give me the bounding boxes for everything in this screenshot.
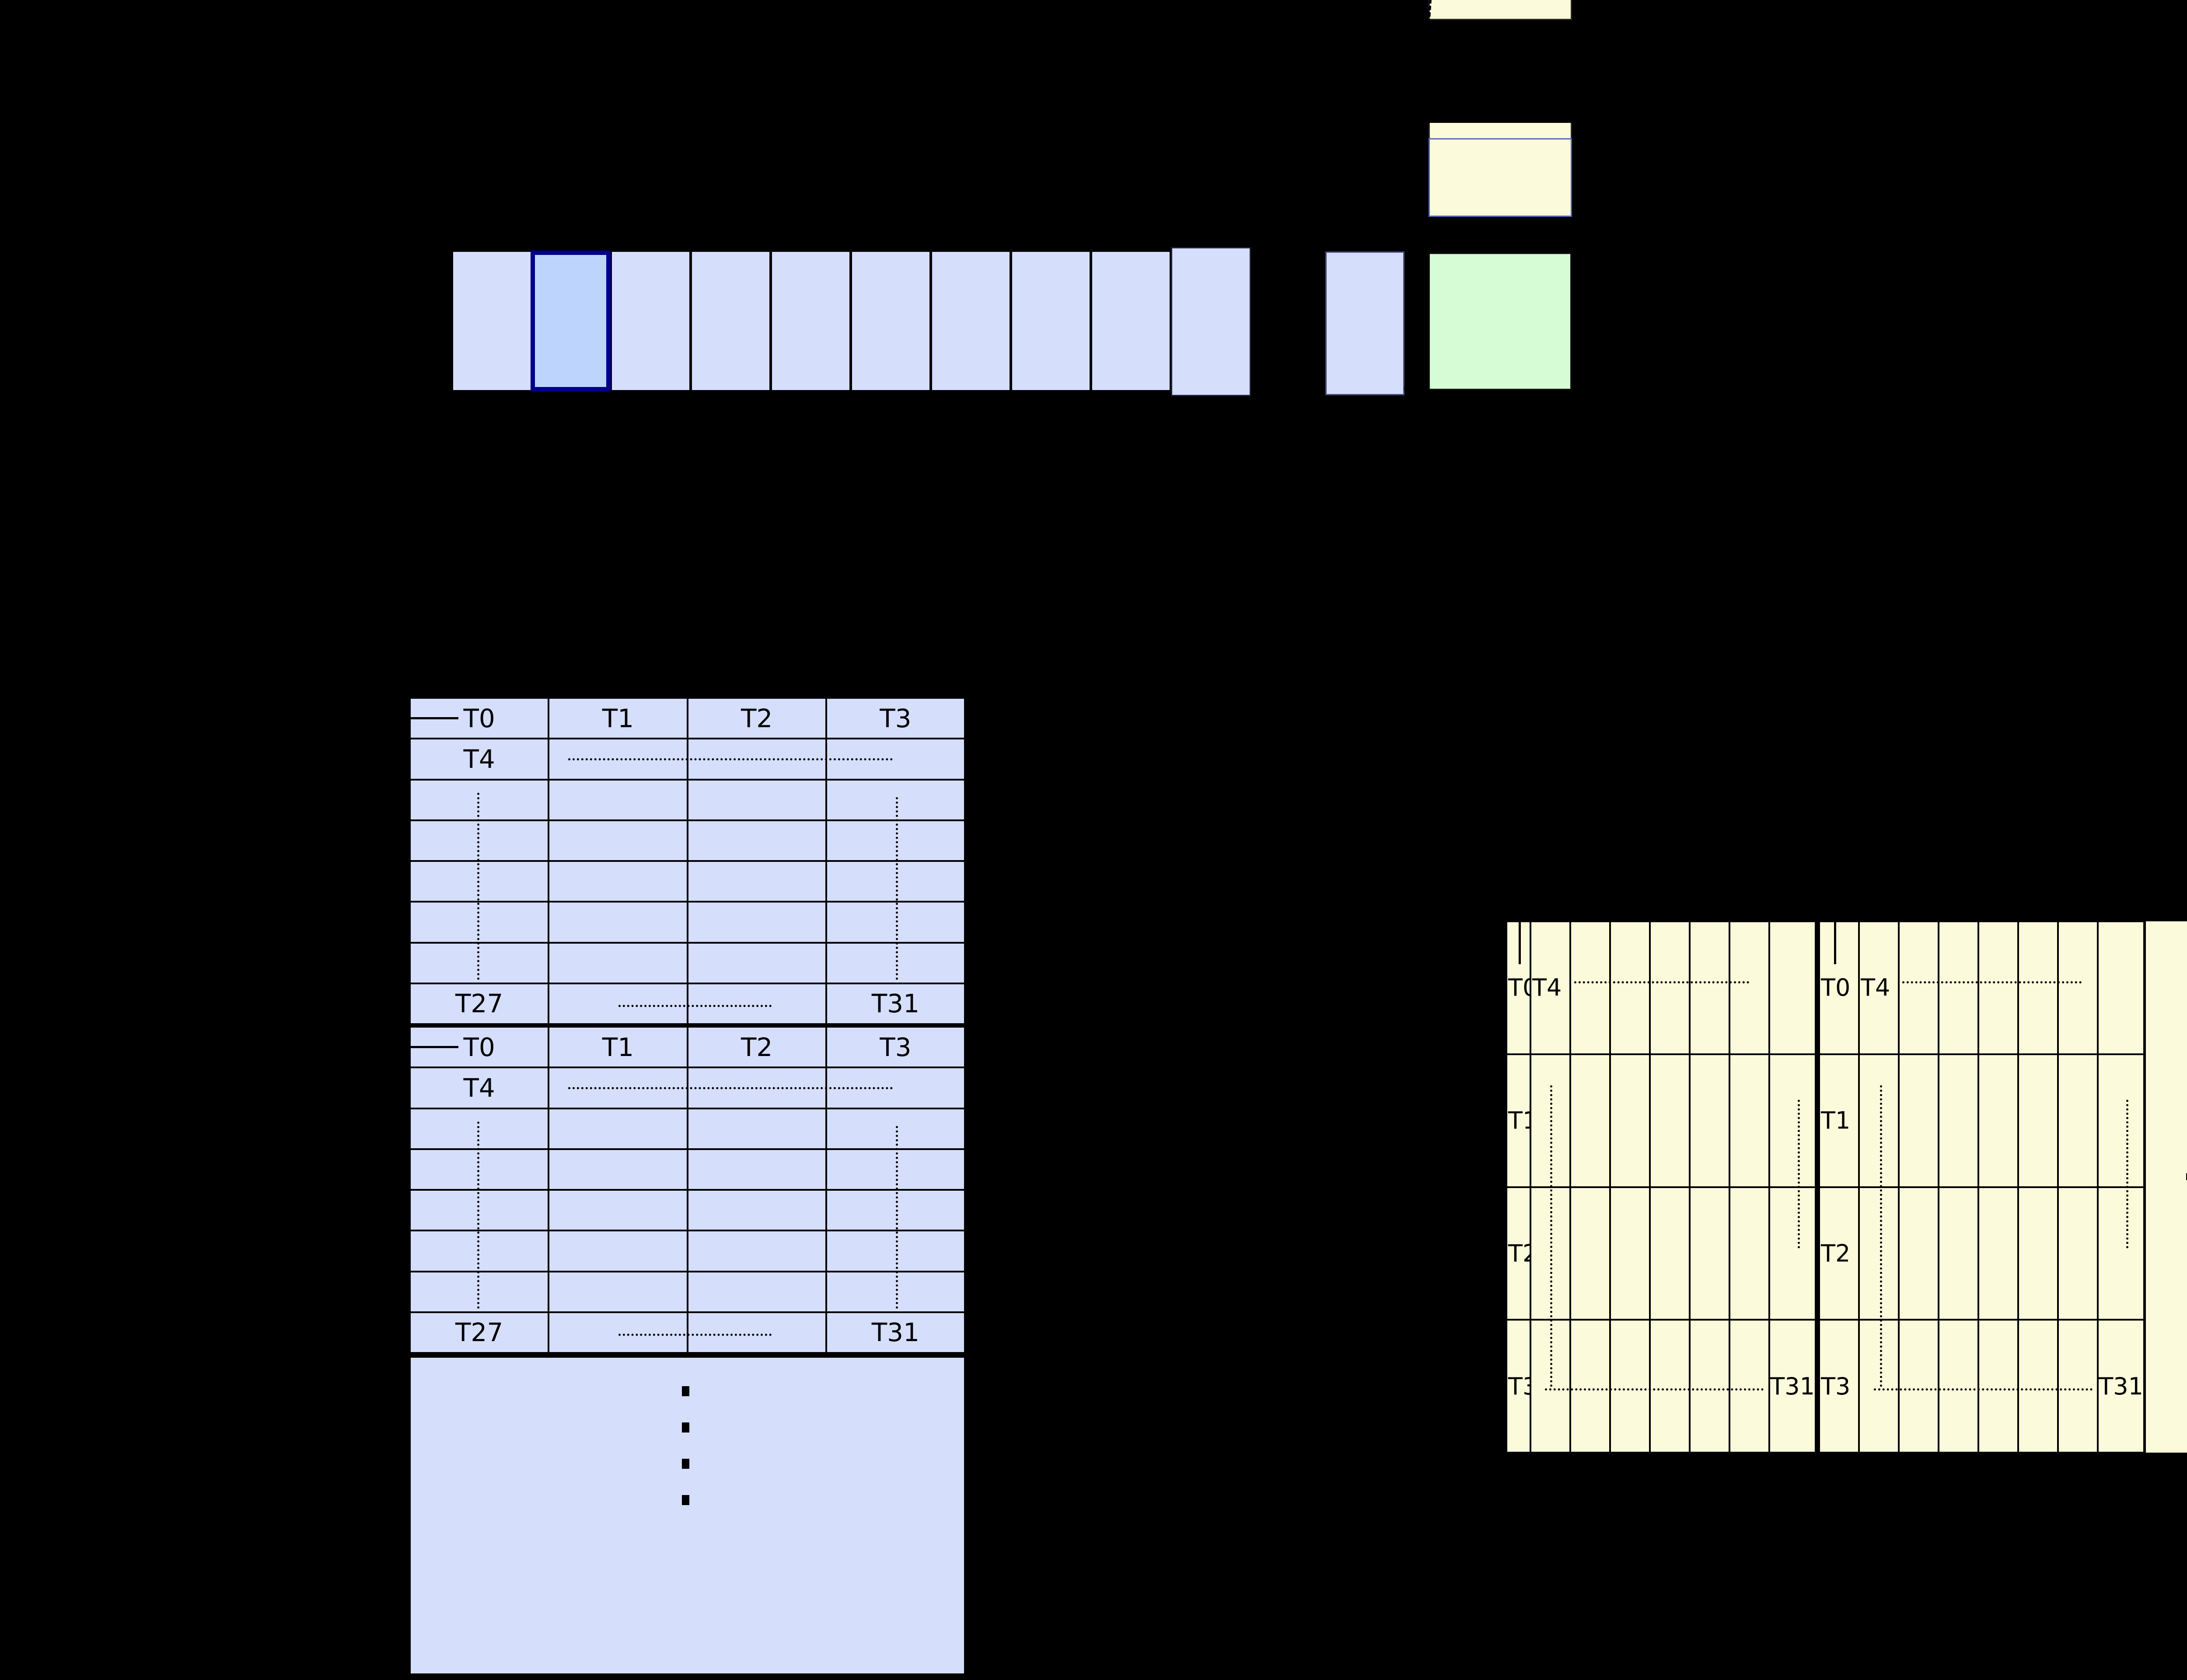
cell-t4: T4 bbox=[410, 1067, 548, 1108]
gcell-empty bbox=[1690, 921, 1729, 1054]
label-t27: T27 bbox=[455, 1318, 503, 1347]
gcell-empty bbox=[1610, 1187, 1650, 1320]
cell-empty bbox=[548, 1108, 687, 1149]
gcell-empty bbox=[1978, 1054, 2018, 1187]
gcell-empty bbox=[1570, 1320, 1610, 1453]
bank-grid-block-2: T0 T4 T1 T2 T3 T31 bbox=[1817, 920, 2146, 1454]
detached-word-box bbox=[1325, 251, 1404, 395]
gcell-empty bbox=[1610, 1320, 1650, 1453]
word-box bbox=[931, 251, 1011, 391]
cell-empty bbox=[688, 1230, 826, 1271]
cell-empty bbox=[688, 820, 826, 861]
dashed-mapping-line bbox=[1404, 0, 1432, 390]
gcell-empty bbox=[1859, 1187, 1899, 1320]
glabel-t0: T0 bbox=[1821, 974, 1850, 1001]
ellipsis-dot bbox=[682, 1422, 689, 1433]
gcell-empty bbox=[1939, 1054, 1978, 1187]
cell-empty bbox=[548, 983, 687, 1024]
gcell-empty bbox=[1650, 1320, 1690, 1453]
col1-ellipsis bbox=[477, 1122, 479, 1309]
gcell-empty bbox=[2098, 921, 2144, 1054]
glabel-t2: T2 bbox=[1821, 1240, 1850, 1267]
label-t27: T27 bbox=[455, 989, 503, 1018]
glabel-t1: T1 bbox=[1821, 1107, 1850, 1134]
gcell-t3: T3 bbox=[1819, 1320, 1859, 1453]
gcell-empty bbox=[2058, 1054, 2098, 1187]
cell-empty bbox=[548, 1149, 687, 1190]
cell-t1: T1 bbox=[548, 1027, 687, 1067]
bank-conflict-grid: T0 T4 T1 T2 T3 T31 T0 T4 bbox=[1505, 920, 2187, 1454]
gcell-empty bbox=[1859, 1054, 1899, 1187]
green-box bbox=[1429, 253, 1572, 390]
cell-empty bbox=[548, 1190, 687, 1230]
gcell-t3: T3 bbox=[1506, 1320, 1530, 1453]
label-t3: T3 bbox=[880, 704, 911, 733]
label-t0: T0 bbox=[463, 1032, 495, 1062]
cell-empty bbox=[688, 1272, 826, 1312]
cell-t31: T31 bbox=[826, 983, 965, 1024]
gcell-empty bbox=[1570, 1054, 1610, 1187]
cell-empty bbox=[548, 780, 687, 820]
cell-empty bbox=[688, 1149, 826, 1190]
glabel-t31: T31 bbox=[2099, 1373, 2143, 1400]
gcell-t31: T31 bbox=[1769, 1320, 1816, 1453]
gcell-empty bbox=[2018, 1320, 2058, 1453]
thread-table: T0 T1 T2 T3 T4 T27 T31 T0 bbox=[409, 697, 966, 1676]
gcell-empty bbox=[1939, 1187, 1978, 1320]
gcell-empty bbox=[1610, 921, 1650, 1054]
gcell-empty bbox=[1650, 921, 1690, 1054]
row-dotted-line bbox=[568, 758, 893, 760]
cell-t2: T2 bbox=[688, 698, 826, 739]
glabel-t3: T3 bbox=[1821, 1373, 1850, 1400]
row4-dotted-line bbox=[1545, 1388, 1764, 1391]
bank-grid-block-1: T0 T4 T1 T2 T3 T31 bbox=[1505, 920, 1817, 1454]
gcell-empty bbox=[2058, 921, 2098, 1054]
gcell-empty bbox=[2058, 1187, 2098, 1320]
gcell-empty bbox=[1729, 1187, 1769, 1320]
gcell-empty bbox=[1729, 1054, 1769, 1187]
label-t1: T1 bbox=[602, 704, 634, 733]
col4-ellipsis bbox=[896, 1126, 898, 1309]
gcell-empty bbox=[1978, 1320, 2018, 1453]
cell-empty bbox=[688, 1312, 826, 1353]
label-t2: T2 bbox=[741, 1032, 772, 1062]
gcell-empty bbox=[1939, 921, 1978, 1054]
label-t31: T31 bbox=[872, 989, 919, 1018]
label-t3: T3 bbox=[880, 1032, 911, 1062]
gcell-t4: T4 bbox=[1530, 921, 1570, 1054]
cell-empty bbox=[548, 820, 687, 861]
bank-grid-continuation bbox=[2146, 920, 2187, 1454]
gcell-empty bbox=[2018, 1054, 2058, 1187]
thread-table-continuation bbox=[409, 1354, 966, 1676]
cell-t27: T27 bbox=[410, 1312, 548, 1353]
pointer-tick bbox=[1519, 921, 1521, 964]
cell-t31: T31 bbox=[826, 1312, 965, 1353]
gcell-empty bbox=[1978, 921, 2018, 1054]
label-t0: T0 bbox=[463, 704, 495, 733]
ellipsis-dot bbox=[682, 1459, 689, 1469]
yellow-box-top-clipped bbox=[1429, 0, 1572, 20]
thread-table-block-2: T0 T1 T2 T3 T4 T27 T31 bbox=[409, 1025, 966, 1354]
gcell-t31: T31 bbox=[2098, 1320, 2144, 1453]
gcell-t2: T2 bbox=[1819, 1187, 1859, 1320]
gcell-t1: T1 bbox=[1506, 1054, 1530, 1187]
col4-ellipsis bbox=[896, 797, 898, 980]
gcell-empty bbox=[1769, 1054, 1816, 1187]
gcell-empty bbox=[1570, 1187, 1610, 1320]
pointer-dash bbox=[409, 717, 458, 719]
gcell-t1: T1 bbox=[1819, 1054, 1859, 1187]
cell-empty bbox=[688, 1108, 826, 1149]
gcell-t0: T0 bbox=[1819, 921, 1859, 1054]
gcell-empty bbox=[1899, 921, 1939, 1054]
cell-t1: T1 bbox=[548, 698, 687, 739]
gcell-empty bbox=[1899, 1320, 1939, 1453]
row-dotted-line bbox=[568, 1087, 893, 1089]
gcell-empty bbox=[1610, 1054, 1650, 1187]
cell-empty bbox=[688, 902, 826, 942]
col1-ellipsis bbox=[477, 793, 479, 980]
word-box bbox=[1091, 251, 1171, 391]
gcell-empty bbox=[1978, 1187, 2018, 1320]
cell-empty bbox=[548, 1312, 687, 1353]
gcell-empty bbox=[1729, 1320, 1769, 1453]
ellipsis-dot bbox=[682, 1495, 689, 1505]
glabel-t4: T4 bbox=[1861, 974, 1890, 1001]
cell-t2: T2 bbox=[688, 1027, 826, 1067]
gcell-empty bbox=[2098, 1187, 2144, 1320]
diagram-canvas: T0 T1 T2 T3 T4 T27 T31 T0 bbox=[0, 0, 2187, 1680]
thread-table-block-1: T0 T1 T2 T3 T4 T27 T31 bbox=[409, 697, 966, 1025]
cell-t4: T4 bbox=[410, 739, 548, 779]
cell-empty bbox=[548, 1230, 687, 1271]
gcell-empty bbox=[1769, 1187, 1816, 1320]
lastrow-dotted-line bbox=[618, 1334, 772, 1336]
gcell-empty bbox=[1650, 1054, 1690, 1187]
gcell-empty bbox=[2018, 1187, 2058, 1320]
word-box bbox=[771, 251, 851, 391]
cell-empty bbox=[688, 1190, 826, 1230]
label-t4: T4 bbox=[463, 1073, 495, 1103]
gcell-empty bbox=[1939, 1320, 1978, 1453]
label-t2: T2 bbox=[741, 704, 772, 733]
word-box-highlighted bbox=[531, 251, 611, 391]
word-box bbox=[691, 251, 771, 391]
cell-empty bbox=[548, 943, 687, 983]
col2-ellipsis bbox=[1550, 1085, 1552, 1387]
word-box-last bbox=[1171, 247, 1251, 396]
cell-empty bbox=[548, 1272, 687, 1312]
cell-empty bbox=[548, 861, 687, 902]
gcell-empty bbox=[1650, 1187, 1690, 1320]
gcell-empty bbox=[1899, 1054, 1939, 1187]
label-t4: T4 bbox=[463, 744, 495, 774]
label-t31: T31 bbox=[872, 1318, 919, 1347]
cell-empty bbox=[688, 943, 826, 983]
gcell-empty bbox=[1729, 921, 1769, 1054]
ellipsis-dot bbox=[682, 1386, 689, 1396]
col2-ellipsis bbox=[1880, 1085, 1882, 1387]
gcell-empty bbox=[1769, 921, 1816, 1054]
gcell-empty bbox=[2098, 1054, 2144, 1187]
word-box bbox=[452, 251, 532, 391]
glabel-t4: T4 bbox=[1532, 974, 1562, 1001]
cell-t3: T3 bbox=[826, 1027, 965, 1067]
gcell-empty bbox=[1570, 921, 1610, 1054]
glabel-t31: T31 bbox=[1770, 1373, 1815, 1400]
gcell-empty bbox=[1690, 1054, 1729, 1187]
pointer-dash bbox=[409, 1046, 458, 1048]
yellow-box-main bbox=[1429, 138, 1572, 217]
row1-dotted-line bbox=[1902, 981, 2082, 983]
gcell-t2: T2 bbox=[1506, 1187, 1530, 1320]
gcell-empty bbox=[2018, 921, 2058, 1054]
gcell-empty bbox=[1690, 1320, 1729, 1453]
yellow-box-strip bbox=[1429, 123, 1572, 138]
gcell-empty bbox=[1899, 1187, 1939, 1320]
cell-empty bbox=[688, 861, 826, 902]
row1-dotted-line bbox=[1574, 981, 1749, 983]
gcell-empty bbox=[1690, 1187, 1729, 1320]
word-box bbox=[851, 251, 931, 391]
cell-empty bbox=[688, 780, 826, 820]
gcell-empty bbox=[2058, 1320, 2098, 1453]
col8-ellipsis bbox=[2126, 1100, 2128, 1248]
lastrow-dotted-line bbox=[618, 1005, 772, 1007]
gcell-empty bbox=[1859, 1320, 1899, 1453]
gcell-t4: T4 bbox=[1859, 921, 1899, 1054]
row4-dotted-line bbox=[1874, 1388, 2093, 1391]
col8-ellipsis bbox=[1798, 1100, 1800, 1248]
cell-t27: T27 bbox=[410, 983, 548, 1024]
label-t1: T1 bbox=[602, 1032, 634, 1062]
cell-t3: T3 bbox=[826, 698, 965, 739]
word-box bbox=[611, 251, 691, 391]
pointer-tick bbox=[1834, 921, 1836, 964]
cell-empty bbox=[548, 902, 687, 942]
cell-empty bbox=[688, 983, 826, 1024]
word-box bbox=[1011, 251, 1091, 391]
